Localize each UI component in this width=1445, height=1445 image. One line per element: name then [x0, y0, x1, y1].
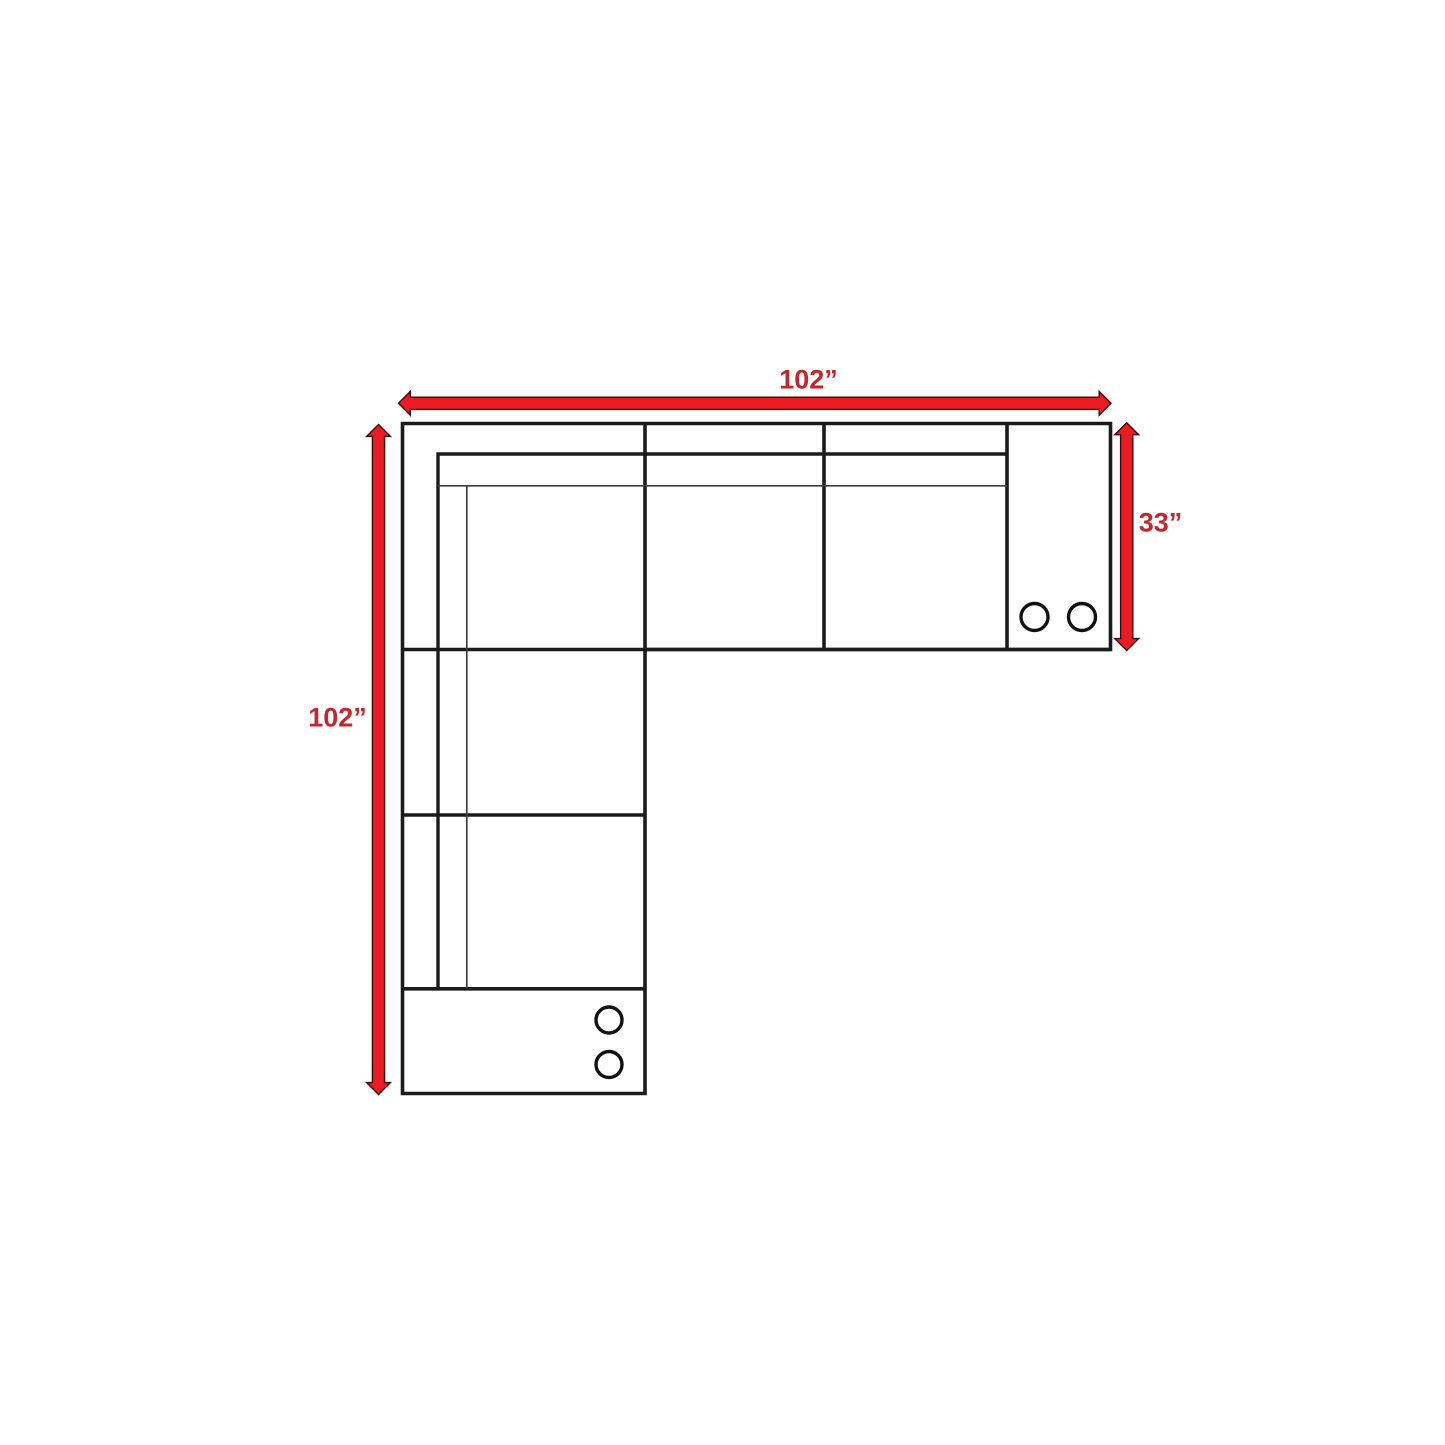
- svg-text:102”: 102”: [779, 365, 838, 395]
- svg-text:33”: 33”: [1139, 508, 1183, 538]
- svg-text:102”: 102”: [308, 703, 367, 733]
